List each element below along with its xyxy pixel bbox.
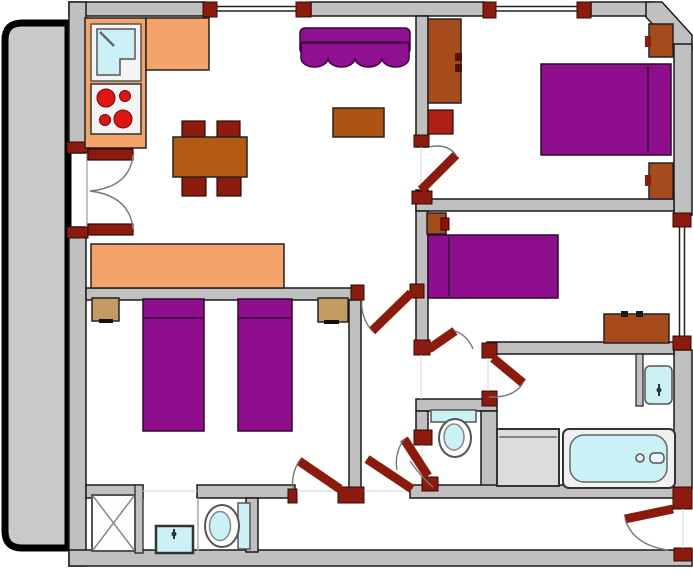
jamb-entry-bottom	[674, 548, 692, 561]
wall-right-mid	[674, 350, 692, 489]
bath-corner-sink-faucet-dot	[657, 388, 662, 393]
jamb-bed1-door-left	[288, 489, 297, 503]
stove	[91, 84, 141, 134]
bed3-dresser-knob-2	[636, 311, 643, 317]
jamb-window1-right	[296, 2, 311, 17]
bed2-double-bed	[541, 64, 671, 155]
bed3-dresser	[604, 314, 669, 343]
bed1-nightstand-west	[92, 298, 119, 321]
jamb-bed2-door-top	[414, 135, 429, 147]
dining-chair-4	[217, 175, 241, 196]
bathtub-handle	[650, 453, 664, 463]
jamb-window-right-bottom	[673, 336, 691, 350]
dining-table	[173, 137, 247, 177]
wardrobe-knob-1	[455, 53, 462, 61]
balcony-door-leaf-bottom	[88, 224, 133, 235]
stove-burner-1	[97, 89, 115, 107]
jamb-hall-door-left	[351, 285, 364, 300]
wardrobe-knob-2	[455, 64, 462, 72]
wall-bed3-bottom	[487, 342, 674, 354]
jamb-window2-right	[577, 2, 591, 18]
floor-plan-svg	[0, 0, 693, 575]
jamb-bed3-door	[414, 340, 430, 355]
wall-bed3-left	[416, 211, 428, 344]
bed2-nightstand-north	[649, 24, 673, 57]
wall-left-lower	[69, 227, 86, 566]
wall-living-bed2	[416, 16, 428, 147]
bed1-bed-a	[143, 299, 204, 431]
jamb-bath-door-bottom	[482, 391, 497, 406]
balcony-door-leaf-top	[88, 149, 133, 160]
shower-room-sink-faucet-dot	[172, 532, 177, 537]
wall-living-bed1	[86, 288, 353, 300]
stove-burner-3	[100, 115, 111, 126]
bed3-nightstand-tab	[441, 218, 449, 230]
wall-bed1-right	[349, 300, 361, 490]
stool	[428, 110, 453, 134]
jamb-bed1-door-right	[338, 487, 364, 503]
balcony	[5, 23, 68, 548]
jamb-window2-left	[483, 2, 496, 18]
wall-shower-stub	[135, 485, 143, 553]
jamb-window-right-top	[673, 213, 691, 227]
window-top1-opening	[217, 3, 296, 15]
jamb-window1-left	[203, 2, 217, 17]
wall-top-c	[591, 2, 652, 16]
wall-sink-nook	[636, 354, 643, 406]
jamb-balcony-bottom	[67, 227, 88, 238]
toilet1-bowl-inner	[210, 512, 231, 541]
window-top2-opening	[496, 3, 577, 15]
jamb-bath-door-top	[482, 343, 497, 358]
toilet2-bowl-inner	[444, 424, 464, 450]
window-right-opening	[675, 227, 691, 336]
bed1-nightstand-west-handle	[99, 319, 113, 323]
wall-left-upper	[69, 2, 86, 153]
bed2-nightstand-north-knob	[645, 36, 651, 47]
floor-plan-page	[0, 0, 693, 575]
dining-chair-3	[182, 175, 206, 196]
bed2-nightstand-south-knob	[645, 175, 651, 186]
wall-bed2-bed3	[416, 199, 674, 211]
bed1-nightstand-east-handle	[324, 320, 339, 324]
wall-south-b	[197, 485, 295, 498]
stove-burner-4	[114, 110, 132, 128]
jamb-bed2-door-bottom	[412, 191, 432, 204]
coffee-table	[333, 108, 384, 137]
wall-top-a	[69, 2, 205, 16]
bathtub-drain	[636, 454, 644, 462]
wall-right-upper	[674, 44, 692, 215]
bed3-single-bed	[428, 235, 558, 298]
wall-top-b	[311, 2, 484, 16]
sideboard	[91, 244, 284, 288]
jamb-wc-door-top	[414, 430, 432, 445]
jamb-entry-top	[673, 487, 692, 509]
bed1-bed-b	[238, 299, 292, 431]
bed2-nightstand-south	[649, 163, 673, 199]
wall-wc-bath	[481, 411, 497, 490]
kitchen-counter	[146, 18, 209, 70]
bed1-nightstand-east	[318, 298, 348, 322]
stove-burner-2	[120, 91, 131, 102]
bed3-dresser-knob-1	[621, 311, 628, 317]
